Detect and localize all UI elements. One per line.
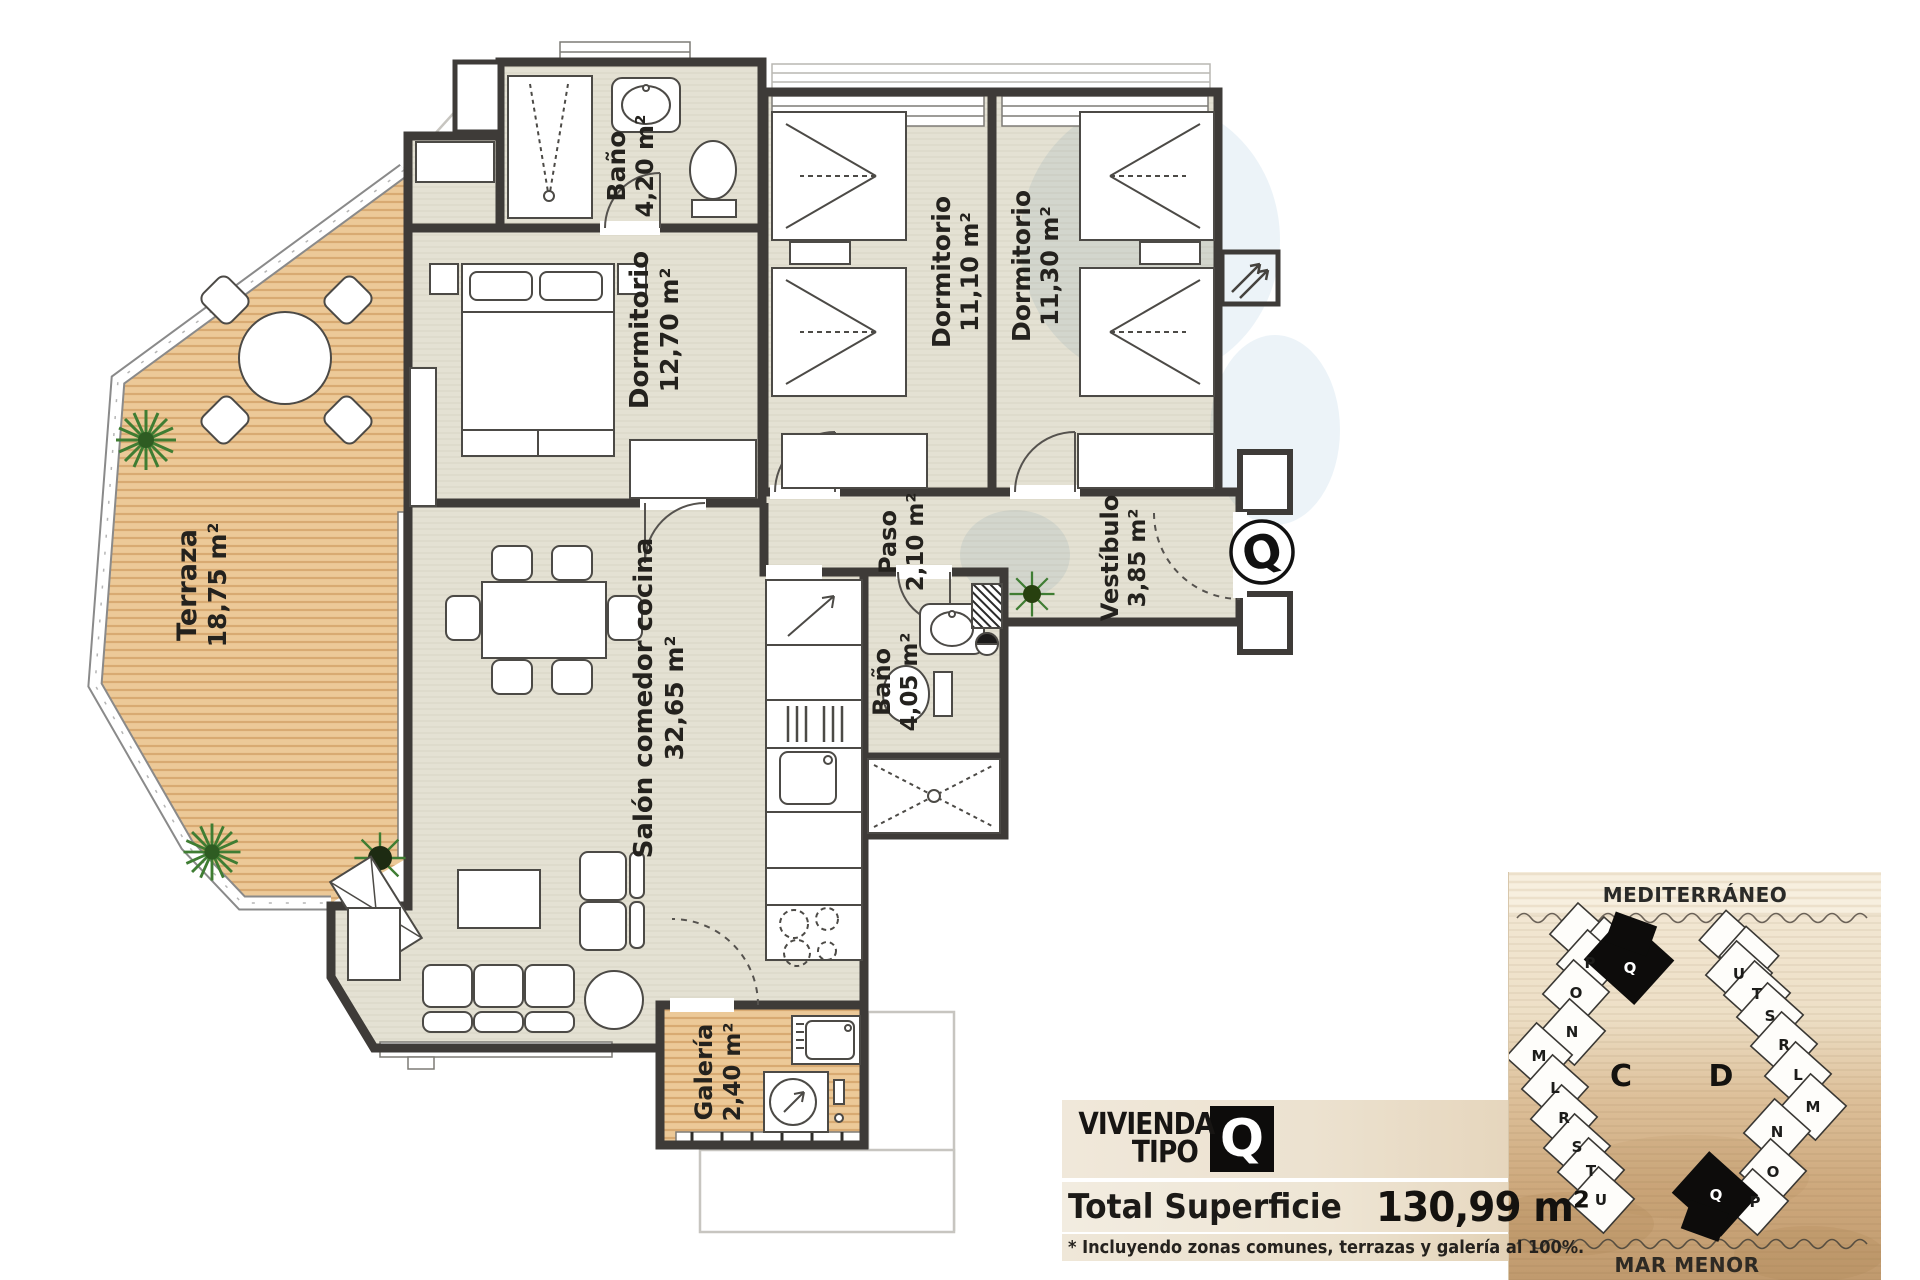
total-superficie-strip: Total Superficie 130,99 m² [1062, 1182, 1508, 1232]
shower-icon-2 [868, 759, 1000, 833]
svg-text:M: M [1532, 1047, 1547, 1065]
room-area-dorm3: 11,30 m² [1036, 206, 1064, 326]
room-label-dorm2: Dormitorio [927, 196, 956, 348]
footnote-strip: * Incluyendo zonas comunes, terrazas y g… [1062, 1234, 1508, 1261]
double-bed-icon [430, 264, 646, 456]
kitchen-counter-icon [766, 580, 862, 966]
svg-text:R: R [1558, 1109, 1570, 1127]
svg-text:M: M [1806, 1098, 1821, 1116]
svg-text:N: N [1771, 1123, 1784, 1141]
total-superficie-value: 130,99 m² [1376, 1183, 1589, 1231]
total-superficie-label: Total Superficie [1068, 1187, 1342, 1227]
room-area-paso: 2,10 m² [903, 493, 929, 592]
toilet-icon [690, 141, 736, 217]
building-d-label: D [1709, 1059, 1734, 1094]
svg-text:O: O [1767, 1163, 1780, 1181]
room-label-terraza: Terraza [172, 529, 203, 641]
room-label-vestibulo: Vestíbulo [1096, 495, 1124, 622]
dresser-icon [410, 368, 436, 506]
svg-text:P: P [1585, 954, 1596, 972]
room-area-salon: 32,65 m² [660, 636, 689, 761]
svg-text:Q: Q [1710, 1186, 1723, 1204]
closet-icon [416, 142, 494, 182]
tipo-line: TIPO [1078, 1139, 1198, 1168]
room-area-dorm2: 11,10 m² [956, 212, 984, 332]
floorplan-page: Terraza 18,75 m² Baño 4,20 m² Dormitorio… [0, 0, 1920, 1280]
room-label-bano-sup: Baño [602, 131, 631, 202]
svg-text:T: T [1586, 1162, 1597, 1180]
room-area-vestibulo: 3,85 m² [1125, 509, 1151, 608]
vivienda-tipo-label: VIVIENDA TIPO [1078, 1111, 1198, 1168]
wardrobe-icon [630, 440, 756, 498]
title-block: VIVIENDA TIPO Q Total Superficie 130,99 … [1062, 1100, 1508, 1261]
svg-text:O: O [1570, 984, 1583, 1002]
room-label-dorm1: Dormitorio [625, 251, 655, 409]
sea-label-bottom: MAR MENOR [1615, 1253, 1760, 1277]
room-label-dorm3: Dormitorio [1007, 190, 1036, 342]
shower-icon [508, 76, 592, 218]
ac-duct-icon [972, 584, 1002, 655]
room-area-galeria: 2,40 m² [720, 1023, 746, 1122]
sideboard-icon [348, 908, 400, 980]
svg-text:Q: Q [1624, 959, 1637, 977]
laundry-sink-icon [792, 1016, 860, 1064]
unit-q-badge: Q [1231, 521, 1293, 583]
svg-text:S: S [1572, 1138, 1583, 1156]
side-table-icon [585, 971, 643, 1029]
svg-text:P: P [1750, 1193, 1761, 1211]
room-label-galeria: Galería [690, 1024, 718, 1121]
sea-label-top: MEDITERRÁNEO [1603, 883, 1788, 907]
vivienda-tipo-strip: VIVIENDA TIPO Q [1062, 1100, 1508, 1178]
room-label-salon: Salón comedor cocina [629, 538, 659, 859]
type-letter-box: Q [1210, 1106, 1274, 1172]
svg-text:U: U [1595, 1191, 1607, 1209]
room-area-bano-inf: 4,05 m² [897, 633, 923, 732]
footnote-text: * Incluyendo zonas comunes, terrazas y g… [1068, 1237, 1584, 1258]
coffee-table-icon [458, 870, 540, 928]
sofa-3seat-icon [423, 965, 574, 1032]
room-label-bano-inf: Baño [868, 648, 896, 716]
svg-text:T: T [1752, 985, 1763, 1003]
room-area-dorm1: 12,70 m² [655, 268, 684, 393]
svg-text:N: N [1566, 1023, 1579, 1041]
building-c-label: C [1610, 1059, 1632, 1094]
room-area-bano-sup: 4,20 m² [631, 114, 659, 217]
room-area-terraza: 18,75 m² [203, 523, 232, 648]
svg-text:L: L [1793, 1066, 1803, 1084]
svg-text:R: R [1778, 1036, 1790, 1054]
svg-text:U: U [1733, 965, 1745, 983]
room-label-paso: Paso [874, 510, 902, 574]
svg-text:S: S [1765, 1007, 1776, 1025]
svg-text:L: L [1550, 1079, 1560, 1097]
